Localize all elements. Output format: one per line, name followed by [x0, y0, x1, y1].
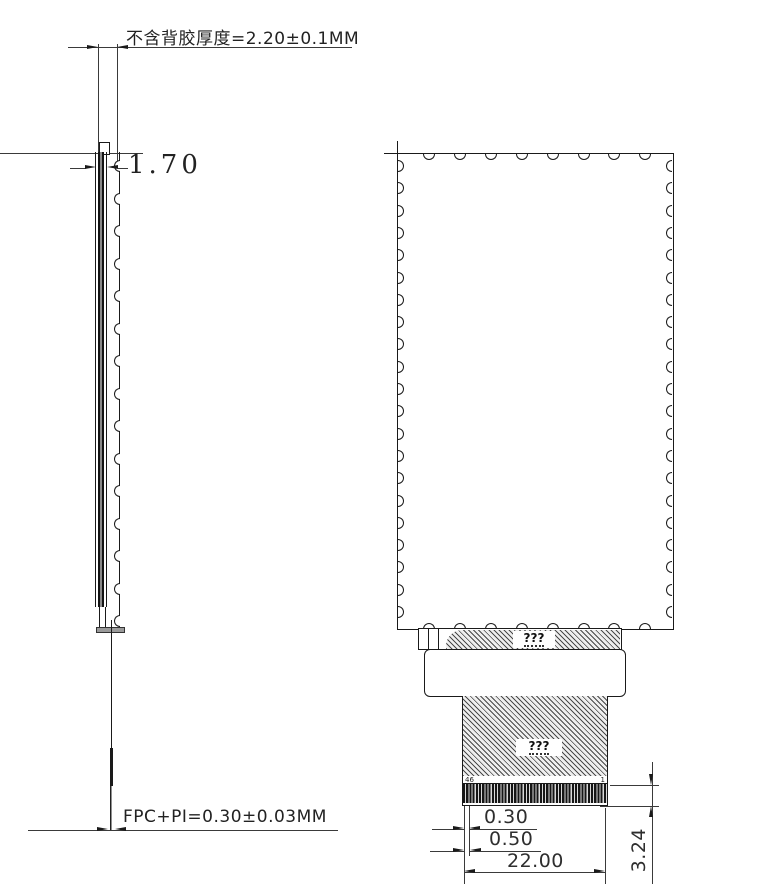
alignment-bump-icon — [666, 584, 672, 596]
alignment-bump-icon — [666, 539, 672, 551]
arrowhead-icon — [87, 45, 98, 49]
alignment-bump-icon — [114, 485, 120, 497]
alignment-bump-icon — [666, 227, 672, 239]
fpc-stiffener-plate — [424, 649, 626, 697]
alignment-bump-icon — [666, 450, 672, 462]
arrowhead-icon — [85, 165, 96, 169]
alignment-bump-icon — [666, 606, 672, 618]
top-thickness-note: 不含背胶厚度=2.20±0.1MM — [126, 24, 359, 49]
band-tab-line — [428, 628, 429, 650]
band-label: ??? — [513, 631, 555, 648]
lcd-glass-section — [98, 152, 104, 607]
tail-hatch — [463, 696, 607, 776]
glass-edge-line — [106, 152, 107, 607]
alignment-bump-icon — [114, 550, 120, 562]
alignment-bump-icon — [666, 383, 672, 395]
alignment-bump-icon — [114, 290, 120, 302]
arrowhead-icon — [453, 826, 464, 830]
alignment-bump-icon — [114, 583, 120, 595]
finger-length-dim: 3.24 — [628, 828, 650, 872]
alignment-bump-icon — [666, 249, 672, 261]
pin-last-label: 1 — [601, 776, 605, 784]
fpc-tail-section — [110, 786, 112, 831]
alignment-bump-icon — [666, 182, 672, 194]
finger-pitch-dim: 0.50 — [489, 828, 533, 850]
arrowhead-icon — [594, 869, 605, 873]
pin-first-label: 46 — [465, 776, 474, 784]
alignment-bump-icon — [114, 323, 120, 335]
alignment-bump-icon — [666, 361, 672, 373]
fpc-line — [111, 620, 113, 750]
arrowhead-icon — [649, 774, 653, 785]
gold-fingers — [463, 784, 607, 803]
arrowhead-icon — [649, 806, 653, 817]
alignment-bump-icon — [666, 472, 672, 484]
arrowhead-icon — [453, 848, 464, 852]
alignment-bump-icon — [114, 615, 120, 627]
fpc-thickness-note: FPC+PI=0.30±0.03MM — [123, 807, 327, 827]
section-line — [0, 153, 143, 154]
alignment-bump-icon — [666, 428, 672, 440]
glass-edge-line — [95, 152, 96, 607]
dimension-line — [464, 872, 605, 873]
band-tab-line — [438, 628, 439, 650]
alignment-bump-icon — [666, 495, 672, 507]
drawing-canvas: 不含背胶厚度=2.20±0.1MM 1.70 FPC+PI=0.30±0.03M… — [0, 0, 765, 892]
alignment-bump-icon — [114, 518, 120, 530]
dimension-line — [28, 830, 338, 831]
finger-offset-dim: 0.30 — [484, 806, 528, 828]
alignment-bump-icon — [114, 420, 120, 432]
alignment-bump-icon — [666, 316, 672, 328]
arrowhead-icon — [115, 827, 126, 831]
tail-label: ??? — [516, 739, 562, 756]
dimension-leader — [118, 168, 128, 169]
arrowhead-icon — [107, 165, 118, 169]
alignment-bump-icon — [666, 272, 672, 284]
fpc-width-dim: 22.00 — [507, 850, 564, 872]
arrowhead-icon — [97, 827, 108, 831]
alignment-bump-icon — [114, 258, 120, 270]
extension-line — [605, 808, 606, 884]
alignment-bump-icon — [666, 205, 672, 217]
fpc-stiffener-section — [110, 748, 114, 786]
alignment-bump-icon — [114, 355, 120, 367]
alignment-bump-icon — [114, 225, 120, 237]
pin-number-strip: 46 1 — [463, 776, 607, 784]
panel-outline — [397, 153, 674, 630]
arrowhead-icon — [464, 869, 475, 873]
dimension-line — [70, 168, 86, 169]
alignment-bump-icon — [114, 453, 120, 465]
panel-thickness-dim: 1.70 — [128, 150, 202, 180]
alignment-bump-icon — [114, 388, 120, 400]
alignment-bump-icon — [666, 405, 672, 417]
extension-line — [117, 44, 118, 170]
alignment-bump-icon — [666, 294, 672, 306]
alignment-bump-icon — [666, 160, 672, 172]
alignment-bump-icon — [114, 193, 120, 205]
alignment-bump-icon — [666, 517, 672, 529]
